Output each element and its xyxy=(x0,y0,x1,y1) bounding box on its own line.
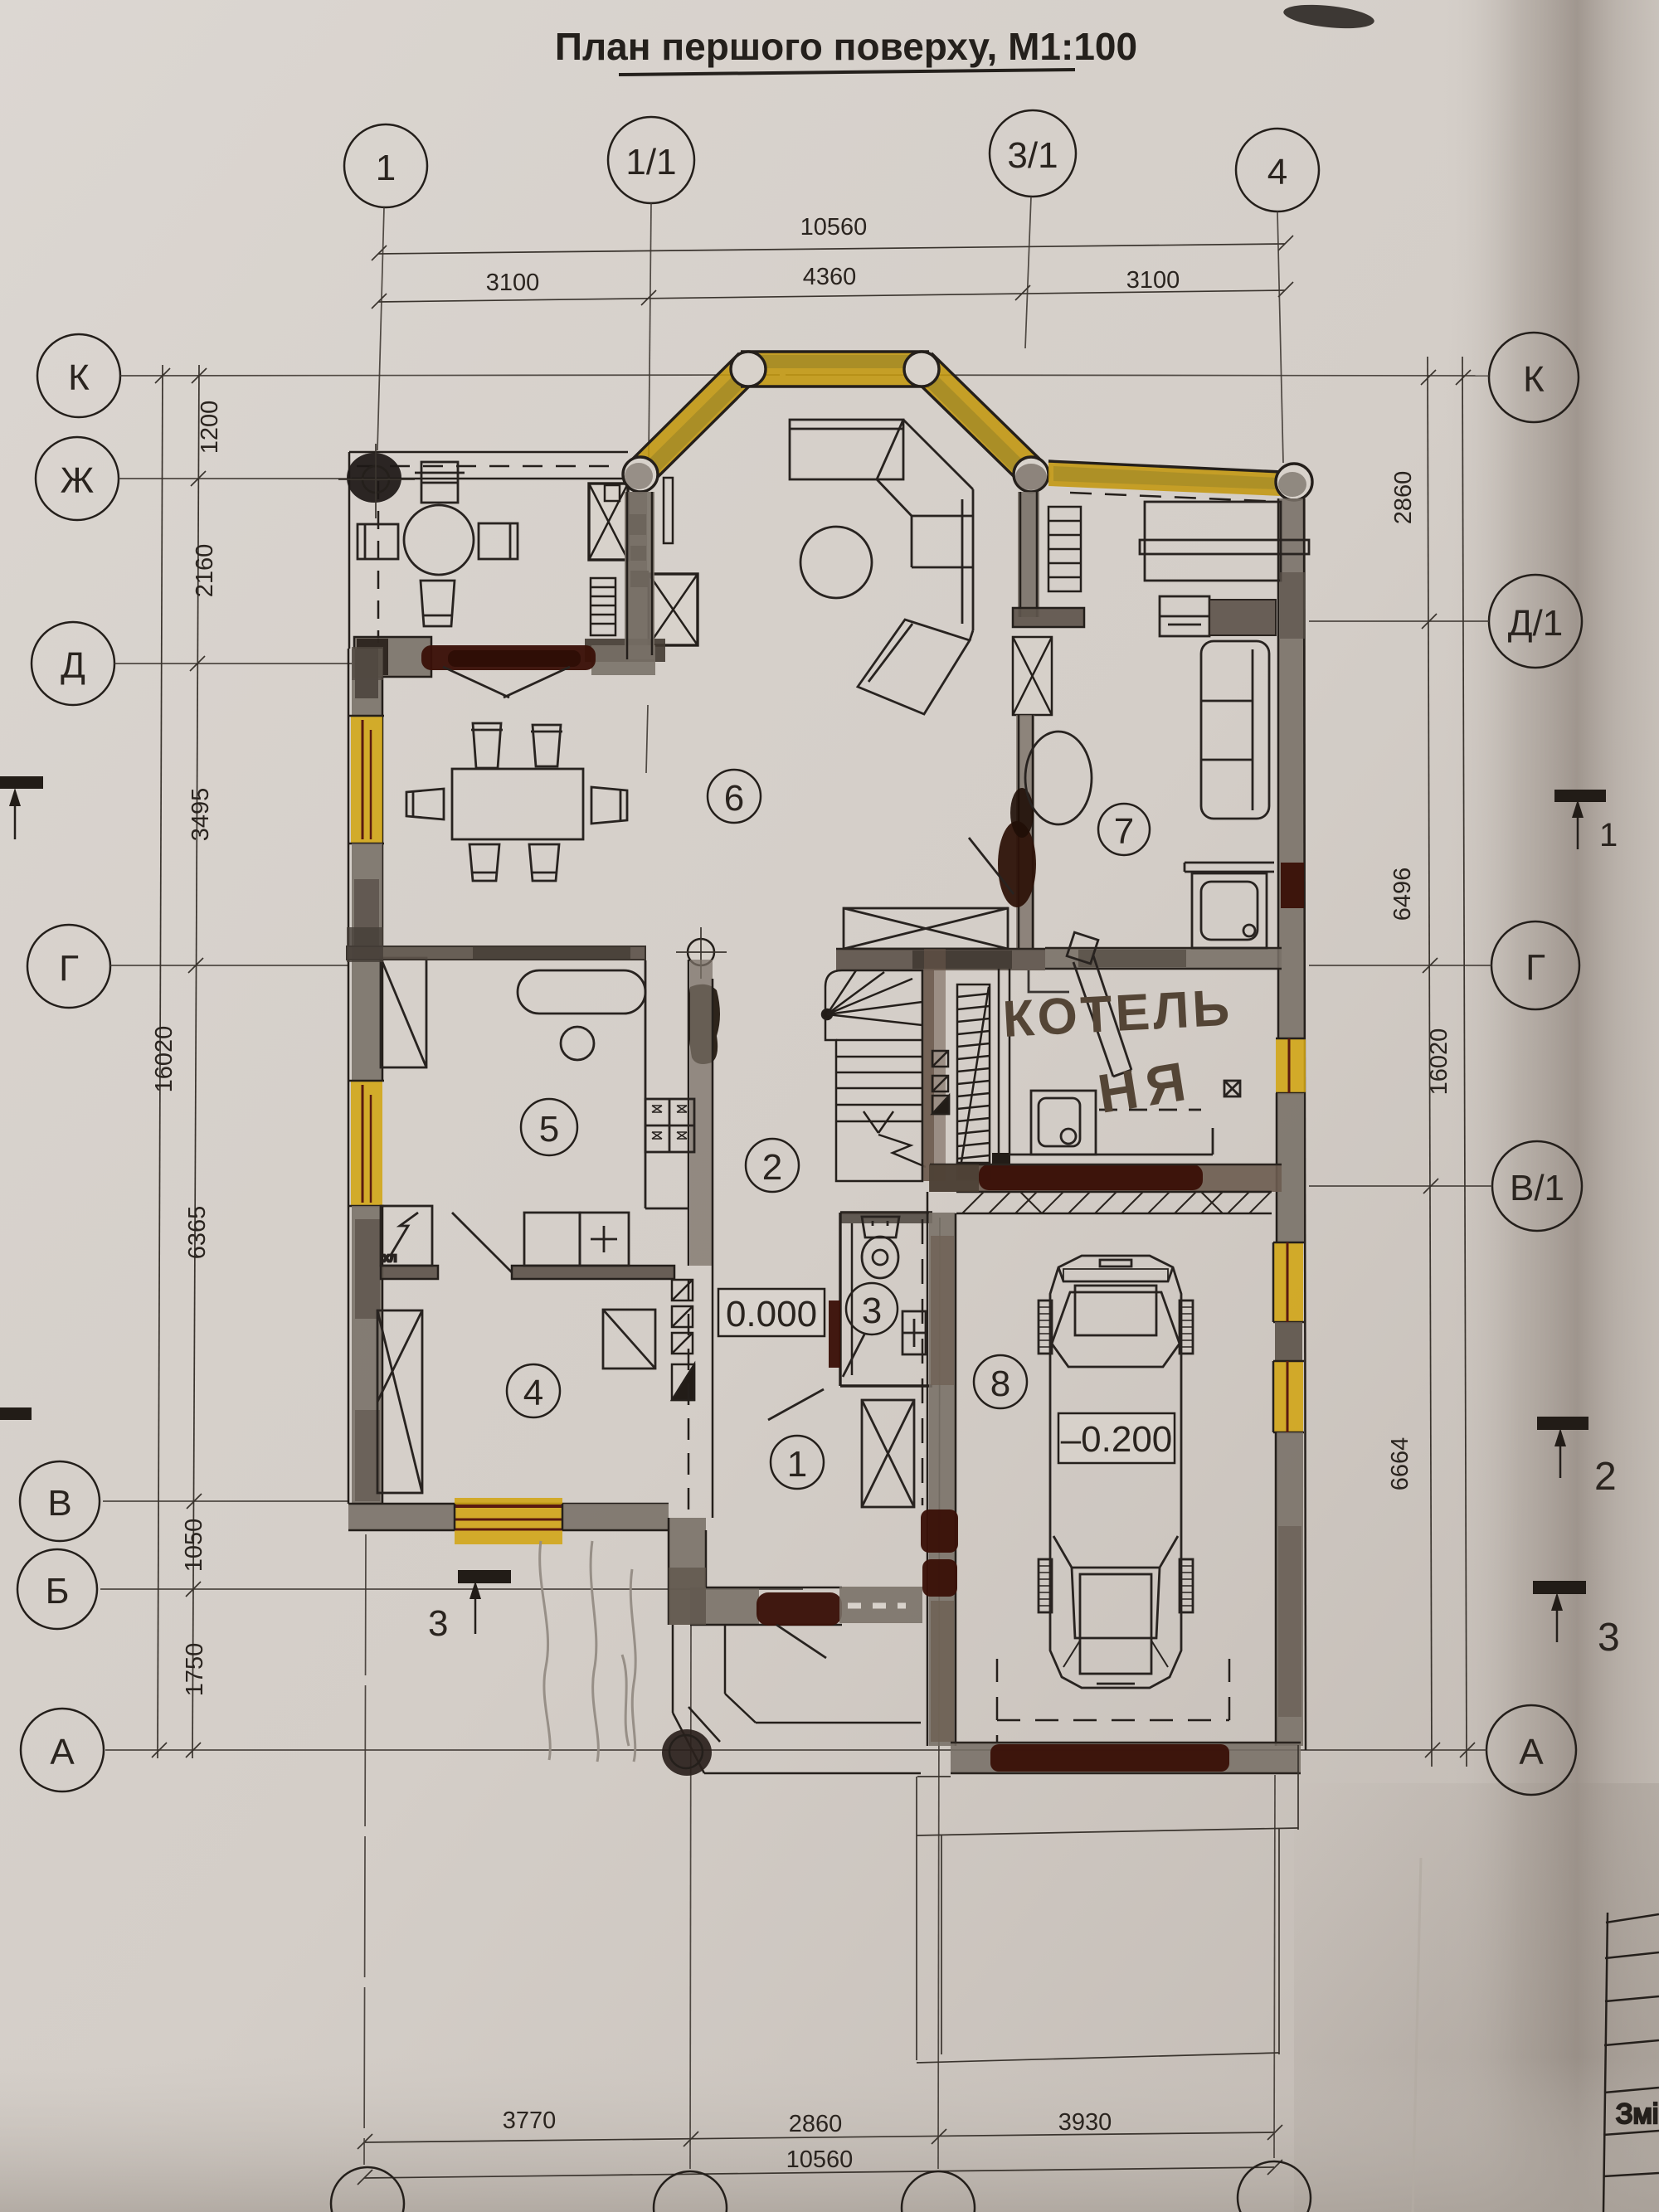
svg-text:КОТЕЛЬ: КОТЕЛЬ xyxy=(1001,980,1234,1048)
svg-text:1: 1 xyxy=(787,1444,807,1485)
svg-text:8: 8 xyxy=(990,1364,1010,1404)
svg-text:2: 2 xyxy=(1594,1455,1617,1499)
svg-text:1750: 1750 xyxy=(182,1643,208,1697)
svg-text:6365: 6365 xyxy=(184,1206,211,1260)
svg-text:А: А xyxy=(1519,1732,1544,1772)
svg-text:4360: 4360 xyxy=(803,264,857,290)
svg-text:Г: Г xyxy=(59,948,79,989)
svg-text:3: 3 xyxy=(862,1291,882,1331)
svg-text:1/1: 1/1 xyxy=(625,142,676,182)
svg-text:3770: 3770 xyxy=(503,2107,557,2134)
svg-text:В/1: В/1 xyxy=(1510,1168,1564,1208)
svg-text:7: 7 xyxy=(1114,811,1134,852)
svg-text:3930: 3930 xyxy=(1058,2109,1112,2136)
svg-text:1: 1 xyxy=(376,148,396,188)
svg-text:3/1: 3/1 xyxy=(1007,135,1058,176)
svg-text:5: 5 xyxy=(539,1109,559,1150)
svg-text:3: 3 xyxy=(1598,1616,1620,1660)
svg-text:А: А xyxy=(50,1732,75,1772)
svg-text:В: В xyxy=(47,1483,71,1524)
svg-text:0.000: 0.000 xyxy=(726,1294,817,1334)
svg-text:16020: 16020 xyxy=(151,1026,178,1093)
svg-text:К: К xyxy=(1523,359,1545,400)
svg-text:1050: 1050 xyxy=(181,1519,207,1573)
svg-text:2860: 2860 xyxy=(789,2111,843,2137)
svg-text:6: 6 xyxy=(724,778,744,819)
svg-text:1200: 1200 xyxy=(197,401,223,455)
svg-text:6664: 6664 xyxy=(1387,1437,1413,1491)
svg-text:2: 2 xyxy=(762,1147,782,1188)
svg-text:3100: 3100 xyxy=(486,270,540,296)
svg-text:2160: 2160 xyxy=(192,544,218,598)
svg-text:3100: 3100 xyxy=(1126,267,1180,294)
svg-text:4: 4 xyxy=(523,1373,543,1413)
svg-text:К: К xyxy=(68,357,90,398)
svg-text:хл: хл xyxy=(383,1251,397,1265)
svg-text:Д/1: Д/1 xyxy=(1508,603,1564,644)
svg-text:16020: 16020 xyxy=(1426,1028,1452,1096)
svg-text:План першого поверху, М1:100: План першого поверху, М1:100 xyxy=(555,25,1137,68)
svg-text:6496: 6496 xyxy=(1389,868,1416,921)
svg-text:4: 4 xyxy=(1267,152,1287,192)
svg-text:Змі: Змі xyxy=(1616,2098,1658,2130)
svg-text:2860: 2860 xyxy=(1390,471,1417,525)
svg-text:3: 3 xyxy=(428,1603,448,1644)
svg-text:10560: 10560 xyxy=(800,214,868,241)
svg-text:3495: 3495 xyxy=(187,788,214,842)
svg-text:Б: Б xyxy=(46,1571,70,1612)
svg-text:10560: 10560 xyxy=(786,2146,854,2173)
svg-text:1: 1 xyxy=(1599,817,1618,853)
svg-text:Г: Г xyxy=(1525,947,1545,988)
svg-text:Д: Д xyxy=(61,645,85,686)
svg-text:–0.200: –0.200 xyxy=(1061,1419,1173,1460)
svg-text:Ж: Ж xyxy=(61,460,95,501)
